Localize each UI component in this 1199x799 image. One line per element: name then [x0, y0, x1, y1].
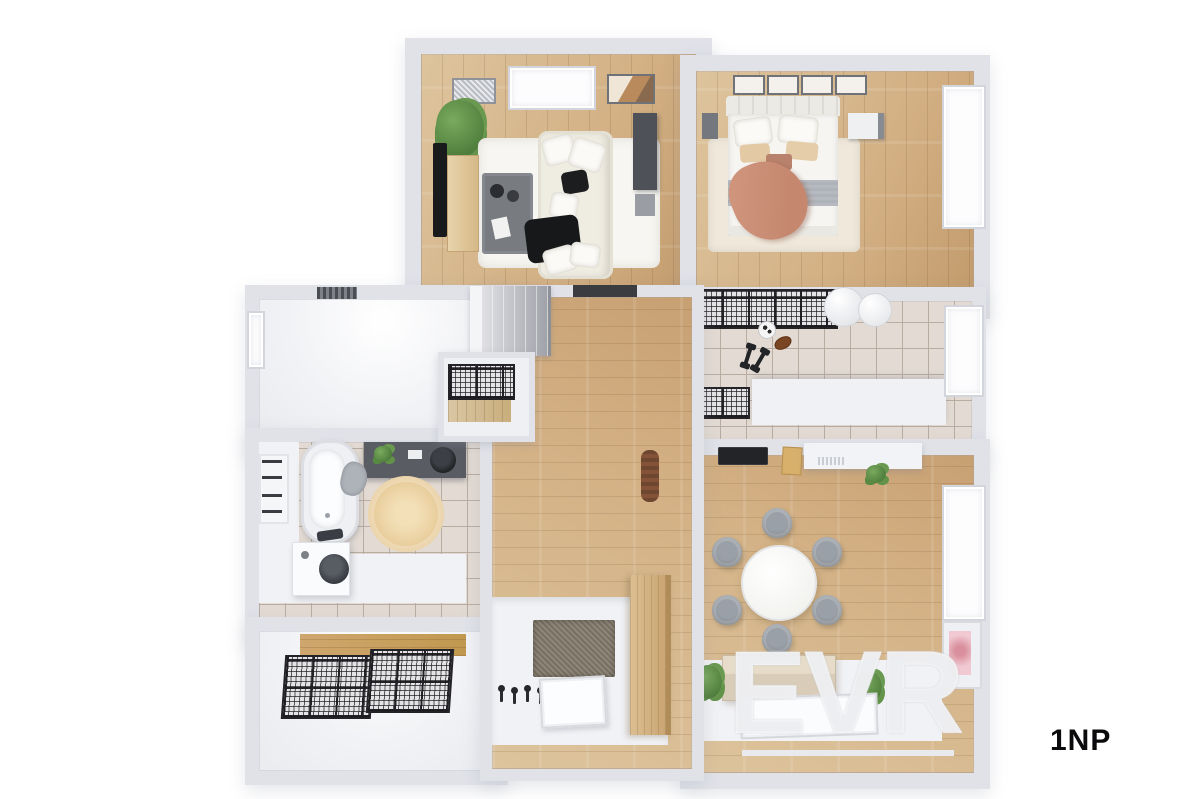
washer-door [319, 554, 349, 584]
dining-window [942, 485, 986, 621]
tv-console [447, 155, 479, 252]
dining-chair [762, 508, 792, 538]
bedroom-art-frame [733, 75, 765, 95]
doormat [533, 620, 615, 677]
closet-wood-shelf [448, 400, 511, 422]
hall-closet [438, 352, 535, 442]
watermark-underline [742, 750, 954, 756]
tv-screen [433, 143, 447, 237]
cooktop [718, 447, 768, 465]
wall-cabinet-dark [633, 113, 657, 190]
nightstand-left [702, 113, 718, 139]
dining-chair [712, 595, 742, 625]
staircase [470, 286, 551, 356]
vanity-tray [408, 450, 422, 459]
bedroom-art-frame [835, 75, 867, 95]
cutting-board [781, 446, 802, 475]
dining-chair [812, 537, 842, 567]
bedroom-art-frame [767, 75, 799, 95]
coat-hook [526, 691, 529, 702]
vanity-plant [374, 446, 392, 462]
football [772, 333, 794, 352]
bathtub-drain [325, 513, 330, 518]
bedroom-window [942, 85, 986, 229]
dumbbell [753, 349, 767, 370]
bathroom [245, 428, 508, 645]
kitchen-plant [866, 465, 886, 483]
ladder-rung [262, 494, 282, 497]
towel-ladder [259, 454, 289, 524]
sofa-pillow [568, 241, 601, 269]
floor-plan-render: EVR 1NP [0, 0, 1199, 799]
stair-landing [470, 286, 482, 356]
closet-wire-baskets [448, 364, 515, 400]
living-room [405, 38, 712, 317]
coat-hook [513, 693, 516, 704]
table-bowl [490, 184, 504, 198]
dining-chair [712, 537, 742, 567]
ceiling-vent-grille [317, 287, 357, 299]
laundry-basket [858, 293, 892, 327]
sofa-pillow [566, 135, 608, 174]
kitchen-cabinets [804, 443, 922, 469]
round-sink [430, 447, 456, 473]
entry-door [539, 675, 608, 728]
floor-label: 1NP [1050, 724, 1111, 758]
dining-table [741, 545, 817, 621]
bathroom-vanity [364, 442, 466, 478]
watermark-text: EVR [728, 634, 998, 752]
dining-chair [812, 595, 842, 625]
bed-headboard [726, 96, 840, 116]
soccer-ball [758, 321, 776, 339]
wire-basket-group [281, 655, 375, 719]
radiator [641, 450, 659, 502]
living-room-doorway [573, 285, 637, 297]
utility-counter [752, 379, 946, 425]
table-bowl [507, 190, 519, 202]
wall-art-frame [607, 74, 655, 104]
utility-window [944, 305, 984, 397]
sink-grate [818, 457, 844, 465]
wire-basket-group [366, 649, 454, 713]
hall-window [247, 311, 265, 369]
ladder-rung [262, 476, 282, 479]
coat-hook [500, 691, 503, 702]
washer-dial [301, 551, 309, 559]
wall-cabinet-gray [635, 194, 655, 216]
washing-machine [292, 542, 350, 596]
storage-room [245, 617, 508, 785]
sofa [538, 131, 613, 279]
ladder-rung [262, 460, 282, 463]
nightstand-right [848, 113, 884, 139]
tall-wardrobe [630, 575, 671, 735]
bedroom [680, 55, 990, 319]
bedroom-art-frame [801, 75, 833, 95]
bathroom-white-floor [259, 554, 466, 603]
table-book [491, 217, 511, 240]
black-pillow [560, 169, 589, 195]
round-bath-rug [368, 476, 444, 552]
living-room-skylight-window [508, 66, 596, 110]
ladder-rung [262, 510, 282, 513]
